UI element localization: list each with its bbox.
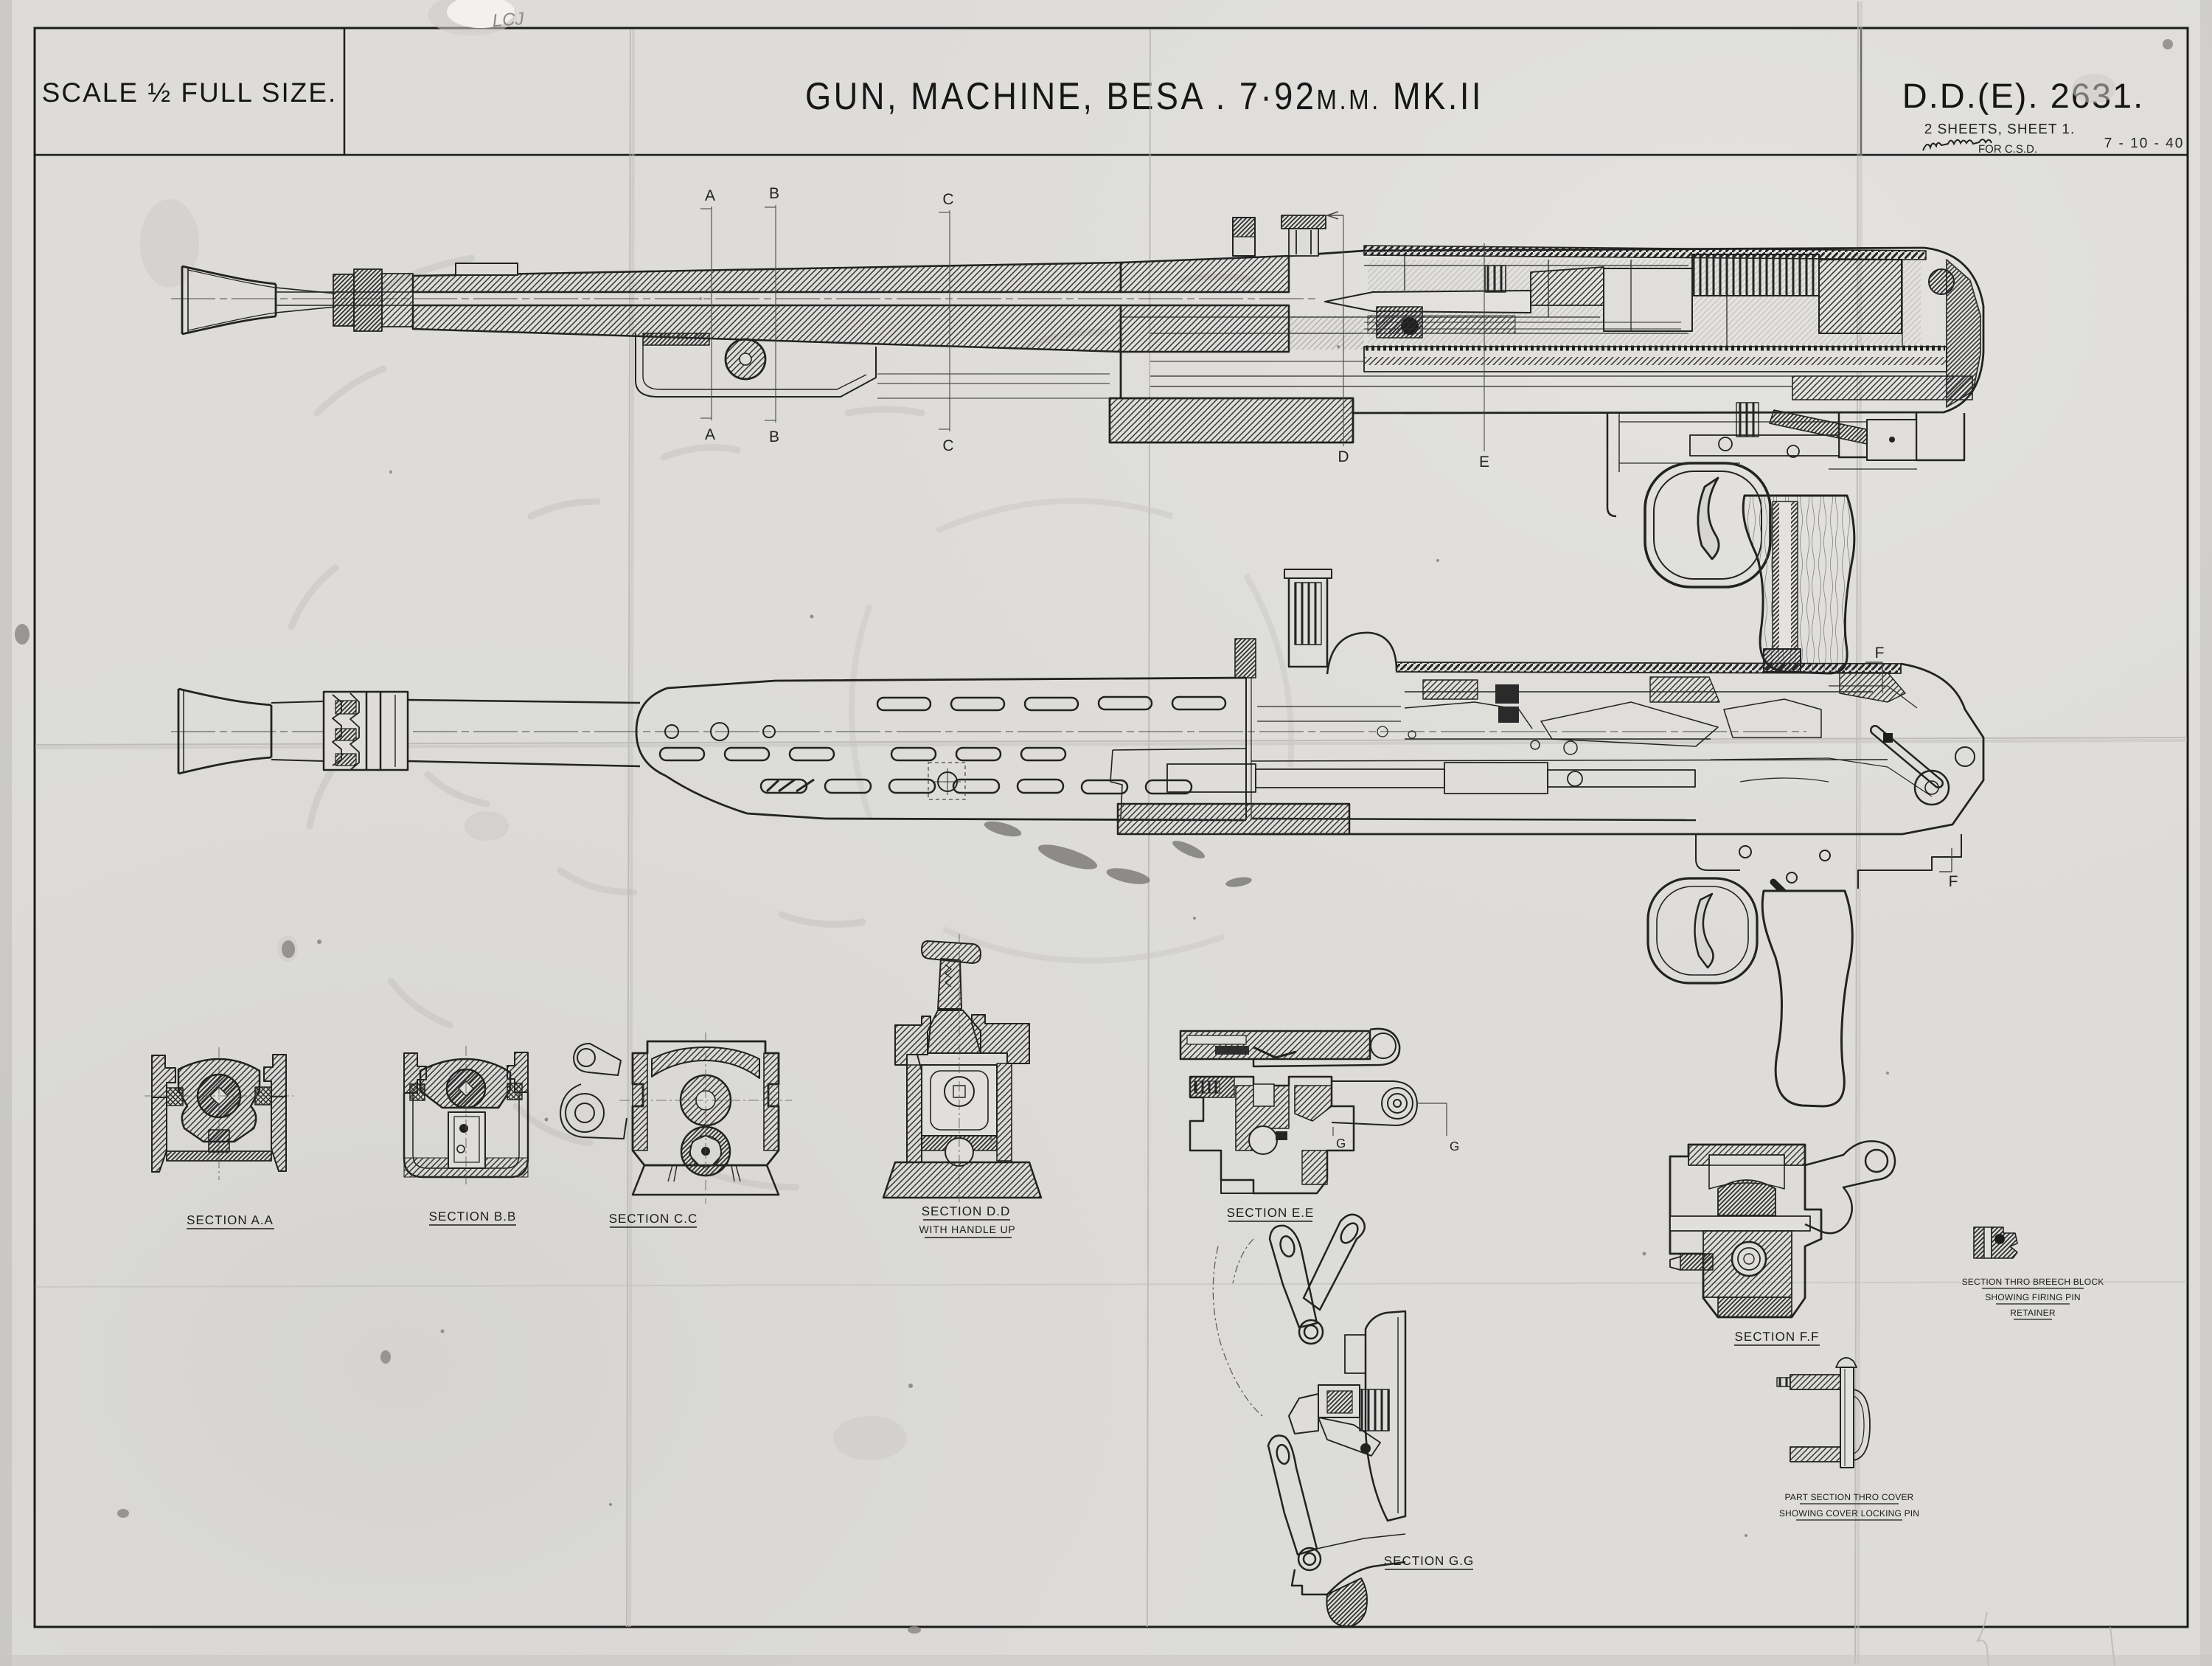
svg-text:F: F: [1949, 873, 1958, 890]
svg-text:C: C: [942, 437, 953, 454]
svg-text:B: B: [769, 428, 779, 445]
svg-text:WITH HANDLE UP: WITH HANDLE UP: [919, 1224, 1016, 1235]
svg-text:GUN, MACHINE, BESA . 7·92M.M.: GUN, MACHINE, BESA . 7·92M.M. MK.II: [805, 75, 1484, 118]
svg-text:G: G: [1450, 1139, 1459, 1153]
svg-text:D: D: [1338, 448, 1349, 465]
svg-text:G: G: [1336, 1136, 1346, 1150]
svg-text:7 - 10 - 40: 7 - 10 - 40: [2104, 136, 2185, 151]
svg-text:SECTION C.C: SECTION C.C: [609, 1212, 698, 1226]
svg-text:PART SECTION THRO COVER: PART SECTION THRO COVER: [1784, 1492, 1913, 1502]
svg-text:A: A: [705, 426, 715, 443]
svg-text:SECTION G.G: SECTION G.G: [1384, 1554, 1474, 1568]
svg-text:SECTION B.B: SECTION B.B: [429, 1209, 517, 1224]
svg-text:SECTION F.F: SECTION F.F: [1735, 1330, 1820, 1344]
svg-text:LCJ: LCJ: [492, 9, 525, 31]
svg-text:RETAINER: RETAINER: [2010, 1308, 2056, 1318]
svg-text:E: E: [1479, 454, 1489, 471]
svg-text:SECTION THRO BREECH BLOCK: SECTION THRO BREECH BLOCK: [1962, 1277, 2104, 1287]
svg-text:SHOWING FIRING PIN: SHOWING FIRING PIN: [1985, 1292, 2081, 1302]
svg-text:C: C: [942, 191, 953, 208]
svg-text:FOR C.S.D.: FOR C.S.D.: [1978, 143, 2037, 156]
svg-text:SCALE ½ FULL SIZE.: SCALE ½ FULL SIZE.: [42, 77, 338, 108]
svg-text:SECTION E.E: SECTION E.E: [1227, 1206, 1315, 1220]
svg-text:SHOWING COVER LOCKING PIN: SHOWING COVER LOCKING PIN: [1779, 1508, 1919, 1519]
svg-text:F: F: [1875, 645, 1885, 662]
svg-text:2 SHEETS, SHEET 1.: 2 SHEETS, SHEET 1.: [1924, 122, 2076, 137]
svg-text:B: B: [769, 185, 779, 202]
svg-text:SECTION D.D: SECTION D.D: [922, 1204, 1011, 1218]
svg-text:A: A: [705, 187, 715, 204]
svg-text:SECTION A.A: SECTION A.A: [187, 1213, 274, 1227]
